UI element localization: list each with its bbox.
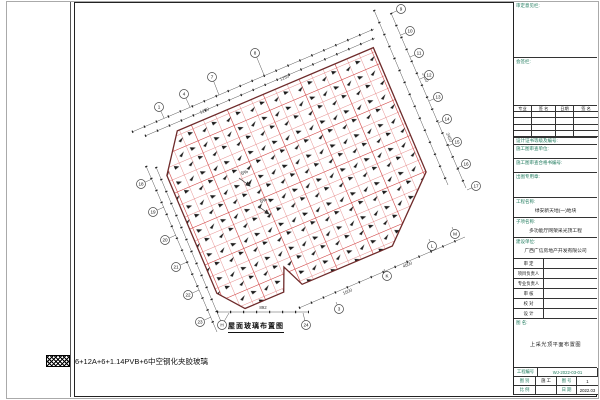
- axis-bubble: 15: [453, 138, 462, 147]
- svg-text:9: 9: [400, 7, 403, 12]
- figure-name-section: 图 名: 上采光顶平面布置图: [514, 319, 597, 368]
- scale-label: 比 例: [514, 386, 536, 395]
- axis-bubble: K: [383, 272, 392, 281]
- svg-text:13: 13: [435, 95, 441, 100]
- axis-bubble: 21: [172, 263, 181, 272]
- panel-marks: [152, 48, 447, 317]
- svg-text:20: 20: [162, 238, 168, 243]
- axis-bubble: M: [451, 230, 460, 239]
- dim-text: 1250: [199, 106, 210, 115]
- svg-text:24: 24: [303, 323, 309, 328]
- dim-text: 1500: [342, 287, 353, 296]
- axis-bubble: 16: [462, 160, 471, 169]
- dim-text: 892: [259, 305, 267, 310]
- sign-cell: [532, 131, 556, 137]
- figure-number-value: 1: [577, 377, 598, 386]
- axis-bubble: 19: [149, 208, 158, 217]
- svg-text:3: 3: [338, 307, 341, 312]
- figure-type-value: 施 工: [536, 377, 557, 386]
- owner-value: 广西广信房地产开发有限公司: [516, 247, 595, 254]
- project-number-label: 工程编号: [514, 368, 538, 377]
- axis-bubble: 24: [302, 321, 311, 330]
- axis-bubble: 22: [184, 291, 193, 300]
- review-cert-label: 施工图审查合格书编号:: [516, 160, 562, 165]
- glass-legend-label: 6+12A+6+1.14PVB+6中空钢化夹胶玻璃: [75, 356, 208, 367]
- review-cert-section: 施工图审查合格书编号:: [514, 159, 597, 173]
- axis-bubble: 23: [196, 318, 205, 327]
- figure-type-row: 图 别 施 工 图 号 1: [514, 377, 597, 386]
- plan-rotated-group: [152, 48, 447, 317]
- axis-bubble: 1: [155, 103, 164, 112]
- role-sign-cell: [544, 279, 597, 289]
- roof-glass-plan-svg: 1250 1250 2450 2450 892 4500 1500 5% 5% …: [0, 0, 600, 400]
- svg-text:L: L: [431, 244, 434, 249]
- figure-type-label: 图 别: [514, 377, 536, 386]
- svg-text:19: 19: [150, 210, 156, 215]
- signoff-label: 会签栏:: [516, 59, 531, 64]
- date-value: 2022.03: [577, 386, 598, 395]
- project-number-value: WJ-2022-03-01: [538, 368, 598, 377]
- scale-date-row: 比 例 日 期 2022.03: [514, 386, 597, 395]
- axis-bubble: 13: [434, 93, 443, 102]
- svg-text:15: 15: [454, 140, 460, 145]
- svg-text:11: 11: [417, 51, 422, 56]
- date-label: 日 期: [557, 386, 577, 395]
- axis-bubble: 4: [180, 90, 189, 99]
- role-label: 校 对: [514, 299, 544, 309]
- svg-text:22: 22: [185, 293, 191, 298]
- plan-caption: 屋面玻璃布置图: [228, 321, 284, 333]
- project-number-row: 工程编号 WJ-2022-03-01: [514, 368, 597, 377]
- axis-bubble: 8: [251, 49, 260, 58]
- figure-name-value: 上采光顶平面布置图: [516, 341, 595, 348]
- subitem-label: 子项名称:: [516, 219, 535, 224]
- project-name-label: 工程名称:: [516, 199, 535, 204]
- subitem-value: 多功能厅网架采光顶工程: [516, 227, 595, 234]
- glass-hatch-swatch-icon: [46, 355, 70, 367]
- signoff-section: 会签栏:: [514, 58, 597, 106]
- glass-legend: 6+12A+6+1.14PVB+6中空钢化夹胶玻璃: [46, 355, 208, 367]
- subitem-section: 子项名称: 多功能厅网架采光顶工程: [514, 218, 597, 238]
- scale-value: [536, 386, 557, 395]
- project-name-section: 工程名称: 绿安新天地(一)地块: [514, 198, 597, 218]
- axis-bubble: 20: [161, 236, 170, 245]
- seal-label: 出图专用章:: [516, 174, 540, 179]
- svg-text:12: 12: [426, 73, 432, 78]
- svg-text:10: 10: [407, 29, 413, 34]
- svg-text:7: 7: [211, 75, 214, 80]
- owner-label: 建设单位:: [516, 239, 535, 244]
- axis-bubble: 18: [137, 180, 146, 189]
- axis-bubble: 11: [415, 49, 424, 58]
- cert-label: 设计证书等级及编号:: [516, 138, 558, 143]
- seal-section: 出图专用章:: [514, 173, 597, 198]
- axis-bubble: 3: [335, 305, 344, 314]
- review-unit-label: 施工图审查单位:: [516, 146, 549, 151]
- review-unit-section: 施工图审查单位:: [514, 145, 597, 159]
- role-label: 项目负责人: [514, 269, 544, 279]
- svg-text:14: 14: [444, 117, 450, 122]
- sign-cell: [556, 131, 574, 137]
- approval-section: 审定意见栏:: [514, 2, 597, 58]
- svg-text:17: 17: [473, 184, 479, 189]
- axis-bubble: 14: [443, 115, 452, 124]
- drawing-sheet: 1250 1250 2450 2450 892 4500 1500 5% 5% …: [0, 0, 600, 400]
- figure-number-label: 图 号: [557, 377, 577, 386]
- role-sign-cell: [544, 289, 597, 299]
- role-label: 专业负责人: [514, 279, 544, 289]
- svg-text:1: 1: [158, 105, 161, 110]
- svg-text:H: H: [220, 323, 223, 328]
- role-label: 审 核: [514, 289, 544, 299]
- axis-bubble: 7: [208, 73, 217, 82]
- figure-name-label: 图 名:: [516, 320, 528, 325]
- title-block: 审定意见栏: 会签栏: 专业 签 名 日期 签 名 设计证书等级及编号: 施工图…: [513, 2, 597, 395]
- svg-text:4: 4: [183, 92, 186, 97]
- axis-bubble: 10: [406, 27, 415, 36]
- svg-text:18: 18: [138, 182, 144, 187]
- roles-table: 审 定 项目负责人 专业负责人 审 核 校 对 设 计: [514, 259, 597, 319]
- dim-text: 4500: [402, 260, 413, 269]
- svg-text:16: 16: [463, 162, 469, 167]
- approval-label: 审定意见栏:: [516, 3, 540, 8]
- axis-bubble: L: [428, 242, 437, 251]
- owner-section: 建设单位: 广西广信房地产开发有限公司: [514, 238, 597, 259]
- axis-bubble: H: [218, 321, 227, 330]
- axis-bubble: 17: [472, 182, 481, 191]
- project-name-value: 绿安新天地(一)地块: [516, 207, 595, 214]
- role-sign-cell: [544, 309, 597, 319]
- role-label: 设 计: [514, 309, 544, 319]
- svg-text:21: 21: [173, 265, 179, 270]
- sign-cell: [514, 131, 532, 137]
- sign-cell: [574, 131, 598, 137]
- axis-bubble: 9: [397, 5, 406, 14]
- role-sign-cell: [544, 299, 597, 309]
- signature-table: 专业 签 名 日期 签 名: [514, 106, 597, 138]
- role-sign-cell: [544, 259, 597, 269]
- svg-text:8: 8: [254, 51, 257, 56]
- role-label: 审 定: [514, 259, 544, 269]
- svg-text:M: M: [453, 232, 457, 237]
- axis-bubble: 12: [425, 71, 434, 80]
- svg-text:23: 23: [197, 320, 203, 325]
- cert-section: 设计证书等级及编号:: [514, 138, 597, 145]
- role-sign-cell: [544, 269, 597, 279]
